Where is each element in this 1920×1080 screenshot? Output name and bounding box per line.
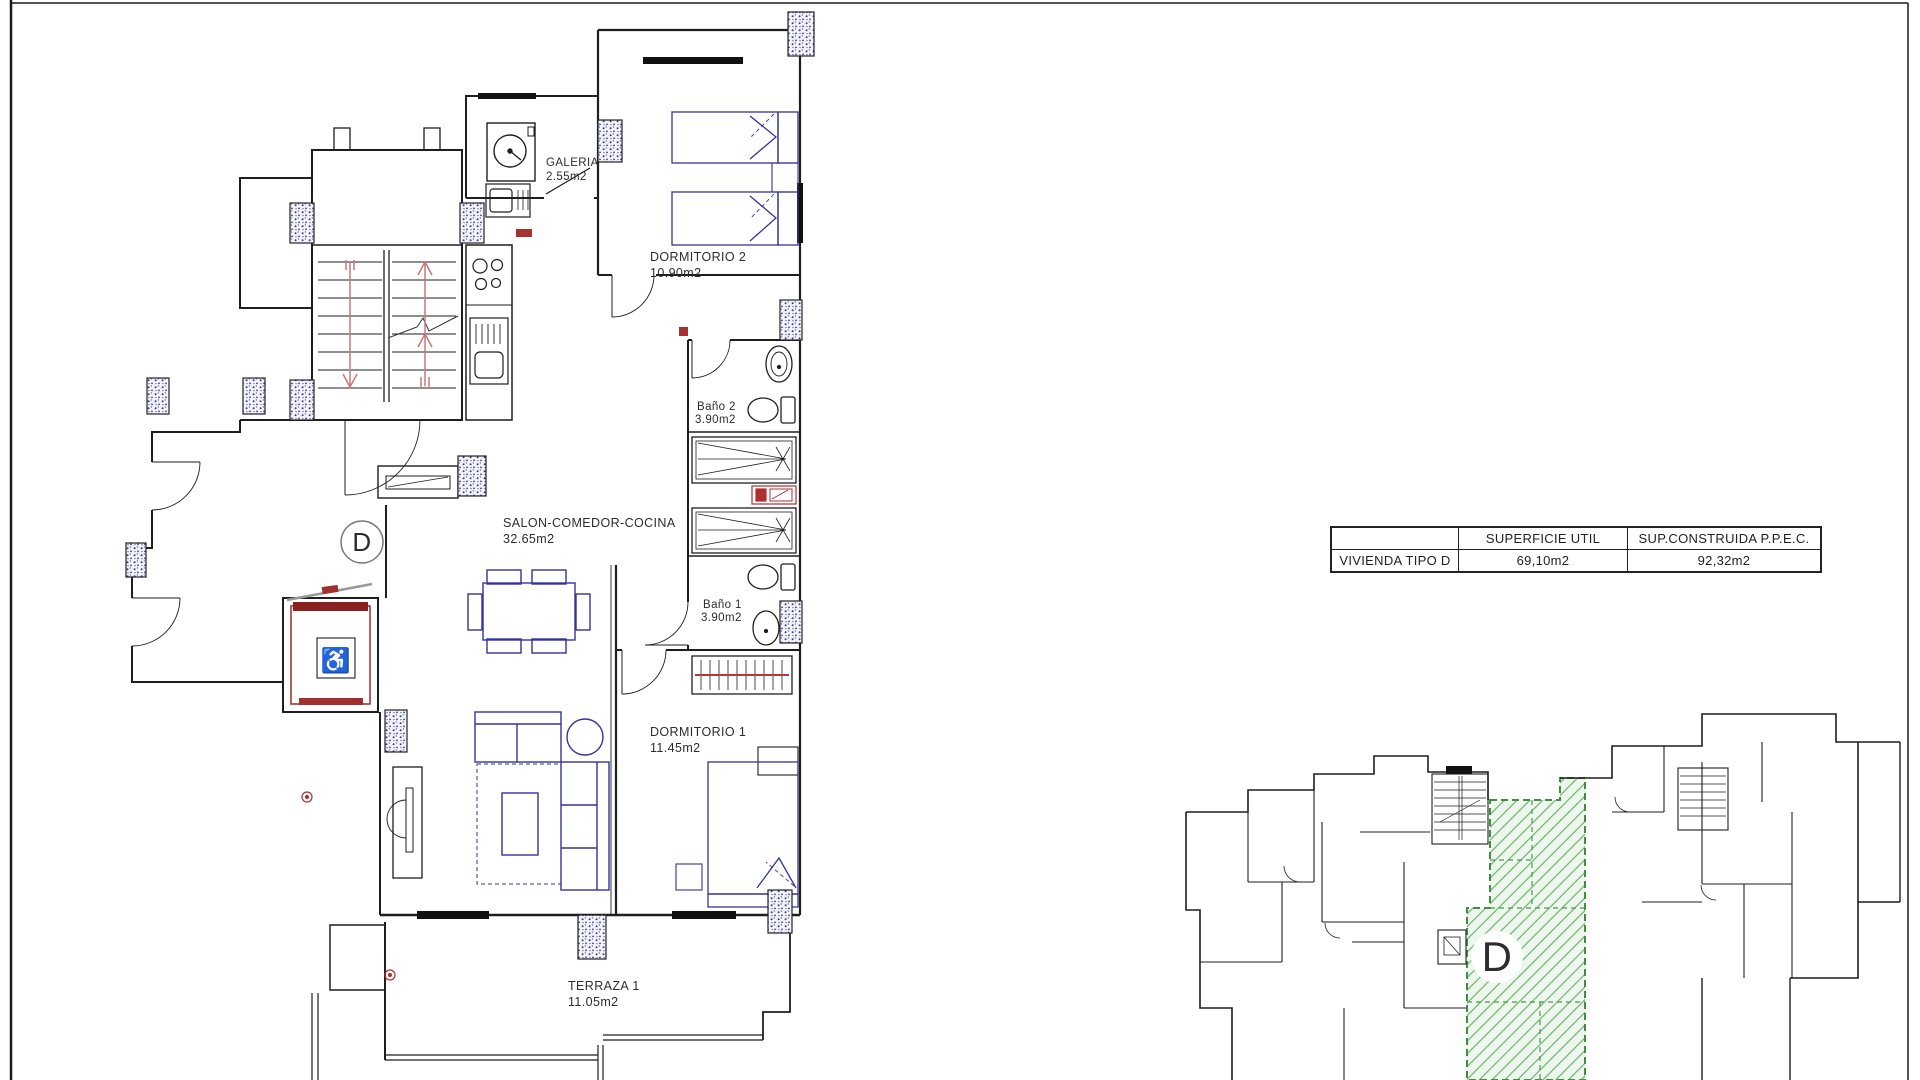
double-bed-icon bbox=[676, 762, 798, 907]
key-plan-unit-badge: D bbox=[1471, 931, 1523, 983]
key-plan-unit-letter: D bbox=[1482, 933, 1513, 980]
wardrobe-icon bbox=[692, 656, 792, 694]
area-summary-table: SUPERFICIE UTIL SUP.CONSTRUIDA P.P.E.C. … bbox=[1330, 526, 1822, 573]
exterior-light-mark bbox=[302, 792, 395, 980]
shower-tray-icon bbox=[692, 437, 796, 483]
red-door-mark bbox=[679, 327, 688, 336]
table-header-row: SUPERFICIE UTIL SUP.CONSTRUIDA P.P.E.C. bbox=[1331, 527, 1821, 550]
stairs-icon bbox=[240, 128, 462, 420]
washbasin-icon bbox=[753, 611, 779, 645]
room-label: DORMITORIO 2 bbox=[650, 250, 746, 264]
table-cell-sup-construida-value: 92,32m2 bbox=[1628, 550, 1822, 573]
washing-machine-icon bbox=[487, 123, 535, 181]
highlighted-unit-d bbox=[1467, 778, 1585, 1080]
shower-tray-icon bbox=[692, 508, 796, 553]
table-header-sup-construida: SUP.CONSTRUIDA P.P.E.C. bbox=[1628, 527, 1822, 550]
structural-columns bbox=[126, 12, 814, 959]
room-area: 10.90m2 bbox=[650, 266, 701, 280]
room-area: 11.05m2 bbox=[568, 995, 619, 1009]
toilet-icon bbox=[748, 564, 795, 590]
room-area: 3.90m2 bbox=[701, 612, 742, 624]
room-label: Baño 2 bbox=[697, 401, 736, 413]
table-cell-vivienda-tipo: VIVIENDA TIPO D bbox=[1331, 550, 1459, 573]
kitchen-counter bbox=[466, 245, 512, 420]
tv-cabinet-icon bbox=[387, 767, 422, 878]
bathroom-strip bbox=[616, 327, 800, 694]
apartment-plan: ♿ D bbox=[126, 12, 814, 1080]
room-area: 11.45m2 bbox=[650, 741, 701, 755]
room-label: DORMITORIO 1 bbox=[650, 725, 746, 739]
laundry-sink-icon bbox=[486, 184, 530, 217]
twin-beds-icon bbox=[672, 112, 798, 245]
room-label: Baño 1 bbox=[703, 599, 742, 611]
sofa-set-icon bbox=[475, 712, 609, 890]
stove-icon bbox=[473, 259, 503, 290]
dining-table-icon bbox=[468, 570, 590, 653]
drawing-sheet: ♿ D bbox=[0, 0, 1920, 1080]
key-plan: D bbox=[1186, 714, 1900, 1080]
room-label: TERRAZA 1 bbox=[568, 979, 640, 993]
room-area: 2.55m2 bbox=[546, 171, 587, 183]
dormitorio2-room bbox=[598, 30, 803, 915]
toilet-icon bbox=[748, 397, 795, 423]
table-header-superficie-util: SUPERFICIE UTIL bbox=[1459, 527, 1628, 550]
red-tap-mark bbox=[516, 229, 532, 237]
elevator-icon: ♿ bbox=[283, 584, 378, 712]
washbasin-icon bbox=[766, 346, 792, 382]
room-area: 32.65m2 bbox=[503, 532, 554, 546]
table-header-blank bbox=[1331, 527, 1459, 550]
sideboard-icon bbox=[378, 466, 458, 498]
room-label: GALERIA bbox=[546, 157, 599, 169]
room-area: 3.90m2 bbox=[695, 414, 736, 426]
terraza-walls bbox=[302, 792, 790, 1080]
stair-direction-arrows bbox=[343, 260, 432, 387]
wheelchair-icon: ♿ bbox=[321, 646, 351, 674]
water-heater-icon bbox=[752, 486, 796, 504]
unit-label-circle: D bbox=[341, 521, 383, 563]
table-row: VIVIENDA TIPO D 69,10m2 92,32m2 bbox=[1331, 550, 1821, 573]
oven-icon bbox=[470, 318, 508, 384]
key-plan-elevator-icon bbox=[1438, 930, 1466, 964]
room-label: SALON-COMEDOR-COCINA bbox=[503, 516, 676, 530]
unit-letter: D bbox=[352, 527, 371, 557]
table-cell-superficie-util-value: 69,10m2 bbox=[1459, 550, 1628, 573]
